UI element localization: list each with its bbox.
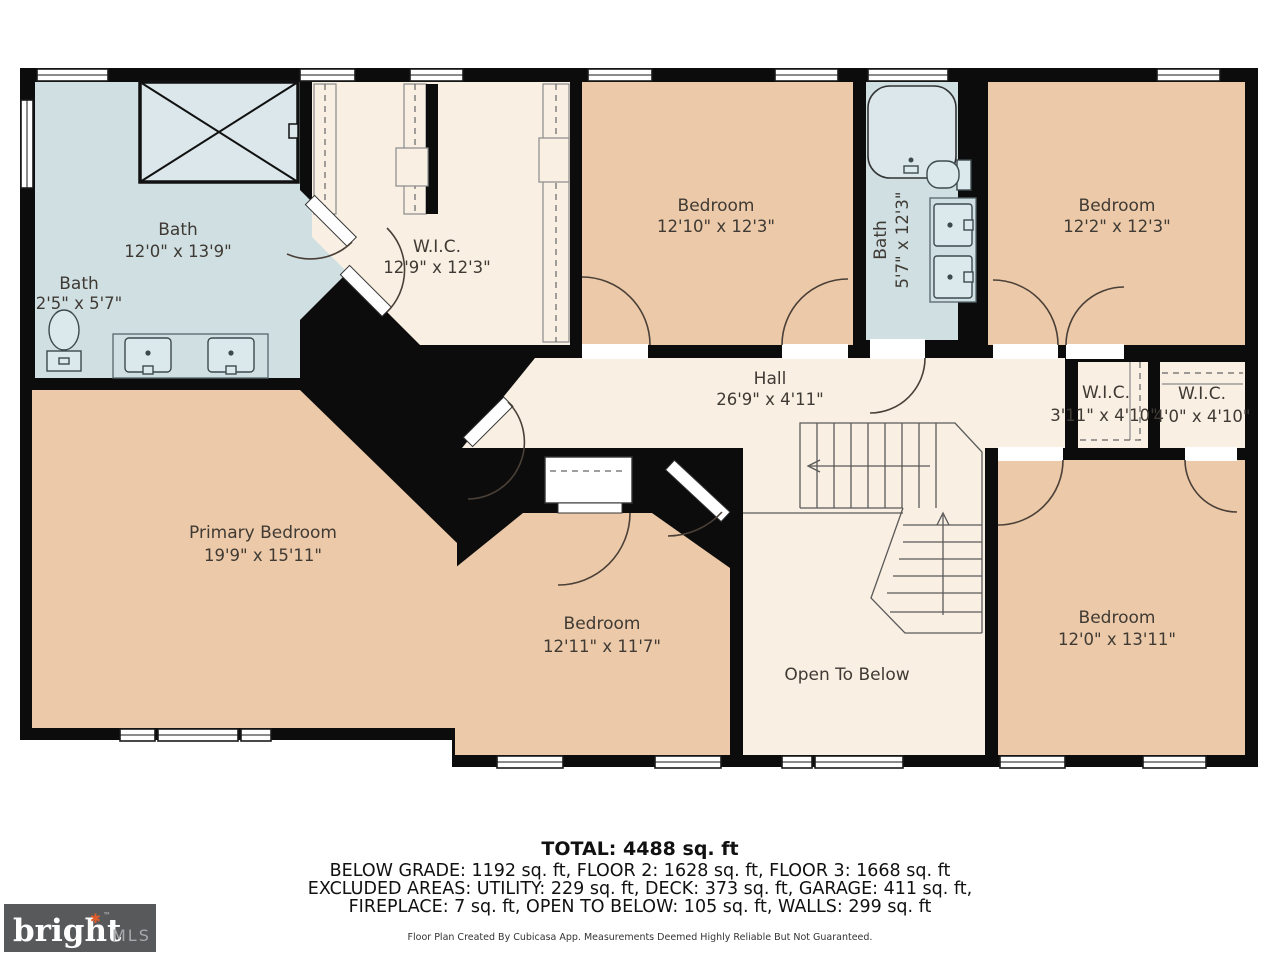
- summary-line1: BELOW GRADE: 1192 sq. ft, FLOOR 2: 1628 …: [330, 861, 951, 881]
- dims-bedroom-bottom-right: 12'0" x 13'11": [1058, 630, 1176, 649]
- dims-bath-primary: 12'0" x 13'9": [124, 242, 232, 261]
- dims-bedroom-bottom-mid: 12'11" x 11'7": [543, 637, 661, 656]
- room-bedroom-bottom-mid: [455, 513, 730, 755]
- room-wic-left: [1078, 362, 1148, 448]
- label-wic-right: W.I.C.: [1178, 384, 1226, 404]
- dims-bath-hall: 5'7" x 12'3": [893, 192, 912, 289]
- area-summary: TOTAL: 4488 sq. ft BELOW GRADE: 1192 sq.…: [308, 838, 972, 943]
- dims-bedroom-top-right: 12'2" x 12'3": [1063, 217, 1171, 236]
- dims-wic-primary: 12'9" x 12'3": [383, 258, 491, 277]
- label-hall: Hall: [754, 369, 787, 389]
- label-bath-hall: Bath: [871, 220, 891, 260]
- shower-icon: [140, 82, 298, 182]
- dims-primary-bedroom: 19'9" x 15'11": [204, 546, 322, 565]
- logo-mls-text: MLS: [112, 926, 151, 945]
- label-primary-bedroom: Primary Bedroom: [189, 523, 337, 543]
- label-wic-left: W.I.C.: [1082, 383, 1130, 403]
- floor-plan-page: Bath 12'0" x 13'9" Bath 2'5" x 5'7" W.I.…: [0, 0, 1280, 960]
- toilet-icon-hall-bath: [927, 160, 971, 190]
- dims-hall: 26'9" x 4'11": [716, 390, 824, 409]
- label-bedroom-bottom-mid: Bedroom: [564, 614, 641, 634]
- label-open-to-below: Open To Below: [784, 665, 909, 685]
- linen-closet: [545, 457, 632, 513]
- summary-line3: FIREPLACE: 7 sq. ft, OPEN TO BELOW: 105 …: [349, 897, 932, 917]
- label-bath-small: Bath: [59, 274, 99, 294]
- floor-plan-canvas: Bath 12'0" x 13'9" Bath 2'5" x 5'7" W.I.…: [0, 0, 1280, 960]
- dims-bath-small: 2'5" x 5'7": [36, 294, 123, 313]
- dims-wic-left: 3'11" x 4'10": [1050, 406, 1158, 425]
- vanity-hall-bath-icon: [930, 198, 976, 302]
- label-bedroom-top-right: Bedroom: [1079, 196, 1156, 216]
- room-wic-right: [1160, 362, 1245, 448]
- toilet-icon-small-bath: [47, 310, 81, 371]
- label-bedroom-bottom-right: Bedroom: [1079, 608, 1156, 628]
- vanity-double-sink-icon: [113, 334, 268, 378]
- summary-total: TOTAL: 4488 sq. ft: [541, 838, 738, 860]
- summary-line2: EXCLUDED AREAS: UTILITY: 229 sq. ft, DEC…: [308, 879, 972, 899]
- label-bath-primary: Bath: [158, 220, 198, 240]
- label-bedroom-top-mid: Bedroom: [678, 196, 755, 216]
- logo-trademark: ™: [103, 911, 111, 920]
- dims-bedroom-top-mid: 12'10" x 12'3": [657, 217, 775, 236]
- logo-asterisk-icon: ✱: [90, 912, 101, 927]
- room-stair-open-area: [743, 448, 985, 755]
- label-wic-primary: W.I.C.: [413, 237, 461, 257]
- dims-wic-right: 4'0" x 4'10": [1154, 407, 1251, 426]
- bright-mls-logo: bright ✱ ™ MLS: [4, 904, 156, 952]
- summary-disclaimer: Floor Plan Created By Cubicasa App. Meas…: [408, 932, 873, 943]
